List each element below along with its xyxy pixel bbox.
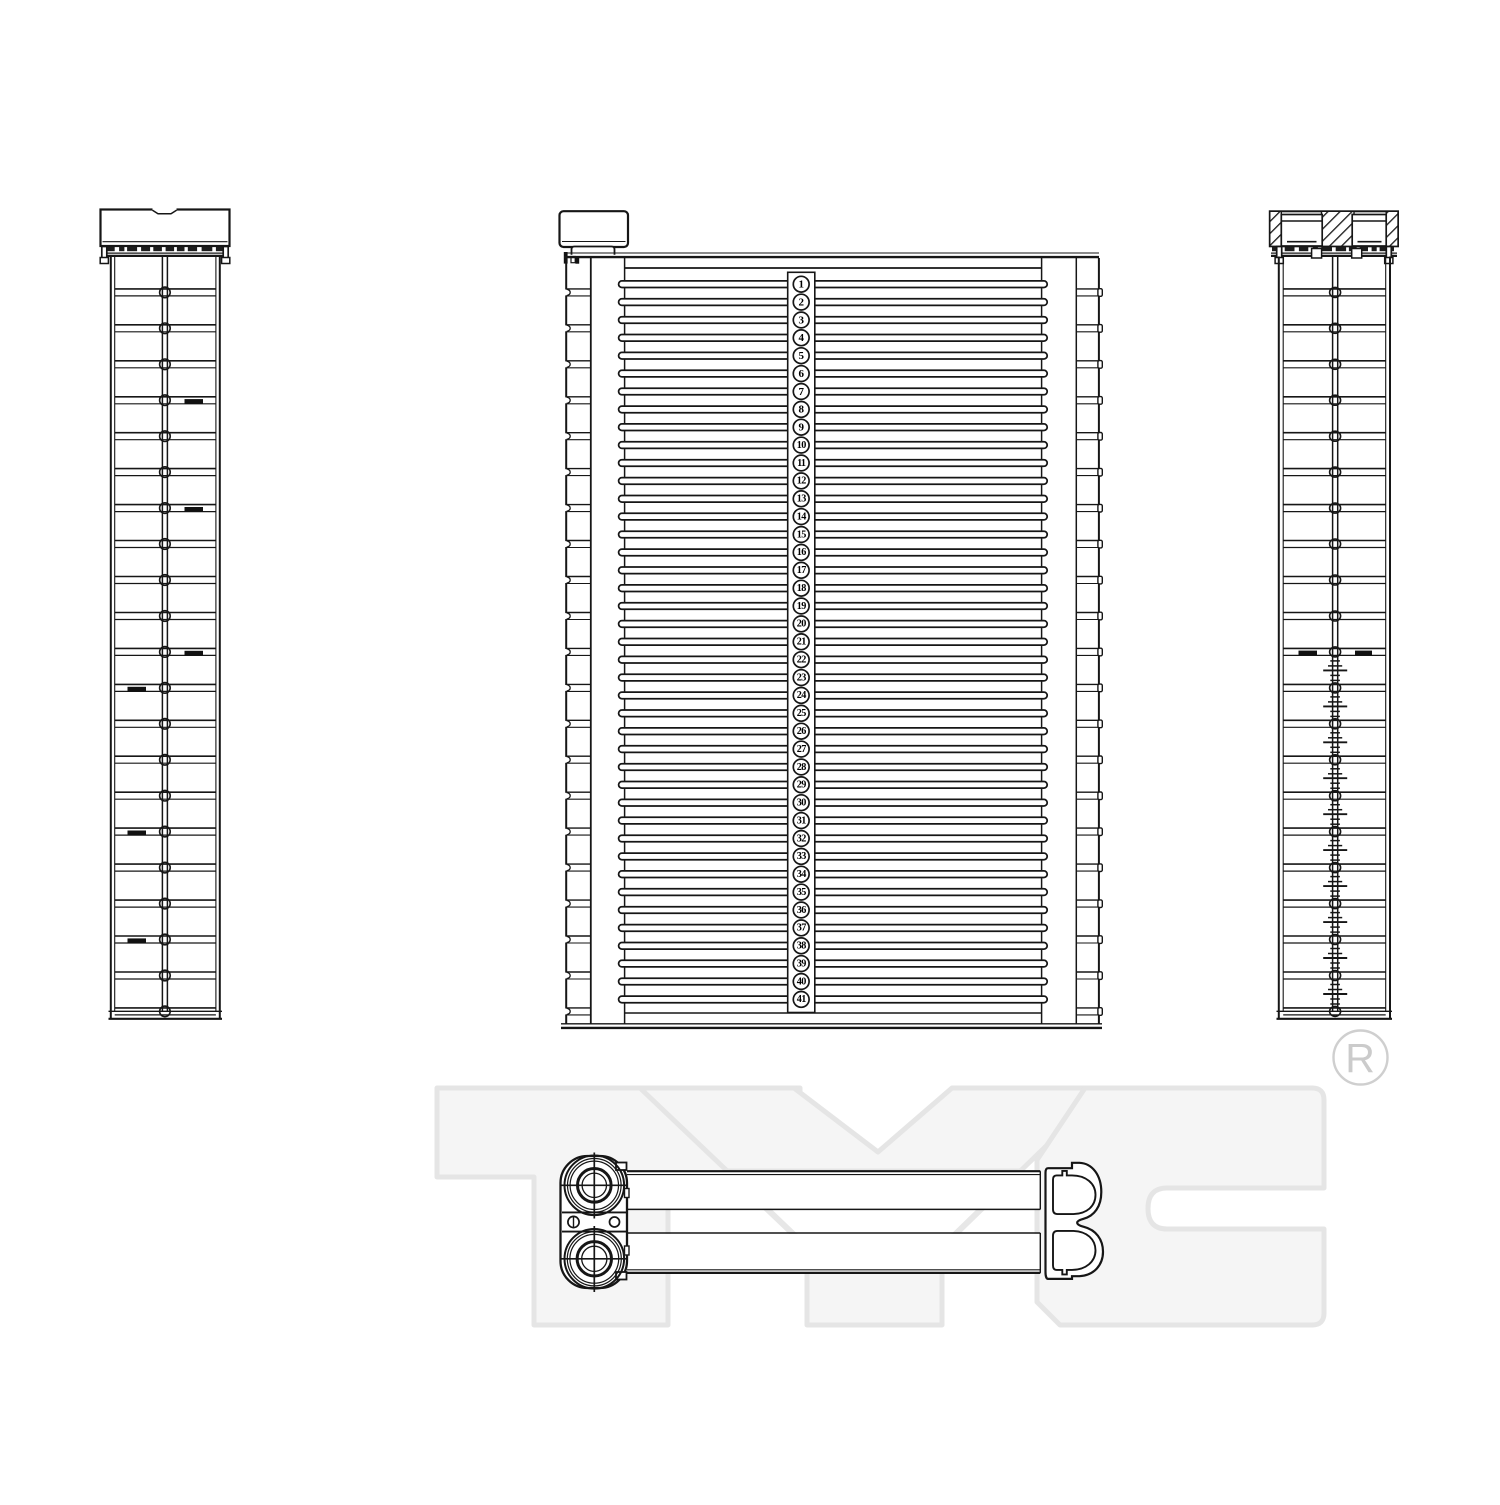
- svg-text:38: 38: [797, 941, 806, 952]
- svg-text:14: 14: [797, 511, 806, 522]
- svg-text:28: 28: [797, 762, 806, 773]
- svg-text:3: 3: [798, 314, 804, 326]
- svg-text:26: 26: [797, 726, 806, 737]
- svg-text:13: 13: [797, 494, 806, 505]
- svg-text:25: 25: [797, 708, 806, 719]
- svg-text:2: 2: [798, 296, 804, 308]
- svg-text:19: 19: [797, 601, 806, 612]
- svg-text:27: 27: [797, 744, 806, 755]
- svg-text:1: 1: [798, 279, 804, 291]
- svg-text:16: 16: [797, 547, 806, 558]
- svg-text:10: 10: [797, 440, 806, 451]
- svg-text:37: 37: [797, 923, 806, 934]
- svg-text:11: 11: [797, 458, 806, 469]
- svg-text:22: 22: [797, 655, 806, 666]
- svg-text:33: 33: [797, 851, 806, 862]
- svg-text:20: 20: [797, 619, 806, 630]
- svg-text:5: 5: [798, 350, 804, 362]
- svg-text:24: 24: [797, 690, 806, 701]
- svg-text:41: 41: [797, 994, 806, 1005]
- svg-text:30: 30: [797, 798, 806, 809]
- svg-text:7: 7: [798, 386, 804, 398]
- svg-text:8: 8: [798, 404, 804, 416]
- svg-text:29: 29: [797, 780, 806, 791]
- svg-text:6: 6: [798, 368, 804, 380]
- svg-text:35: 35: [797, 887, 806, 898]
- svg-text:23: 23: [797, 672, 806, 683]
- svg-text:18: 18: [797, 583, 806, 594]
- svg-text:31: 31: [797, 815, 806, 826]
- svg-text:9: 9: [798, 422, 804, 434]
- svg-text:36: 36: [797, 905, 806, 916]
- svg-text:15: 15: [797, 529, 806, 540]
- svg-text:12: 12: [797, 476, 806, 487]
- svg-text:21: 21: [797, 637, 806, 648]
- svg-text:4: 4: [798, 332, 804, 344]
- svg-text:17: 17: [797, 565, 806, 576]
- svg-text:40: 40: [797, 976, 806, 987]
- svg-text:32: 32: [797, 833, 806, 844]
- svg-text:34: 34: [797, 869, 806, 880]
- svg-text:R: R: [1345, 1035, 1375, 1081]
- svg-text:39: 39: [797, 958, 806, 969]
